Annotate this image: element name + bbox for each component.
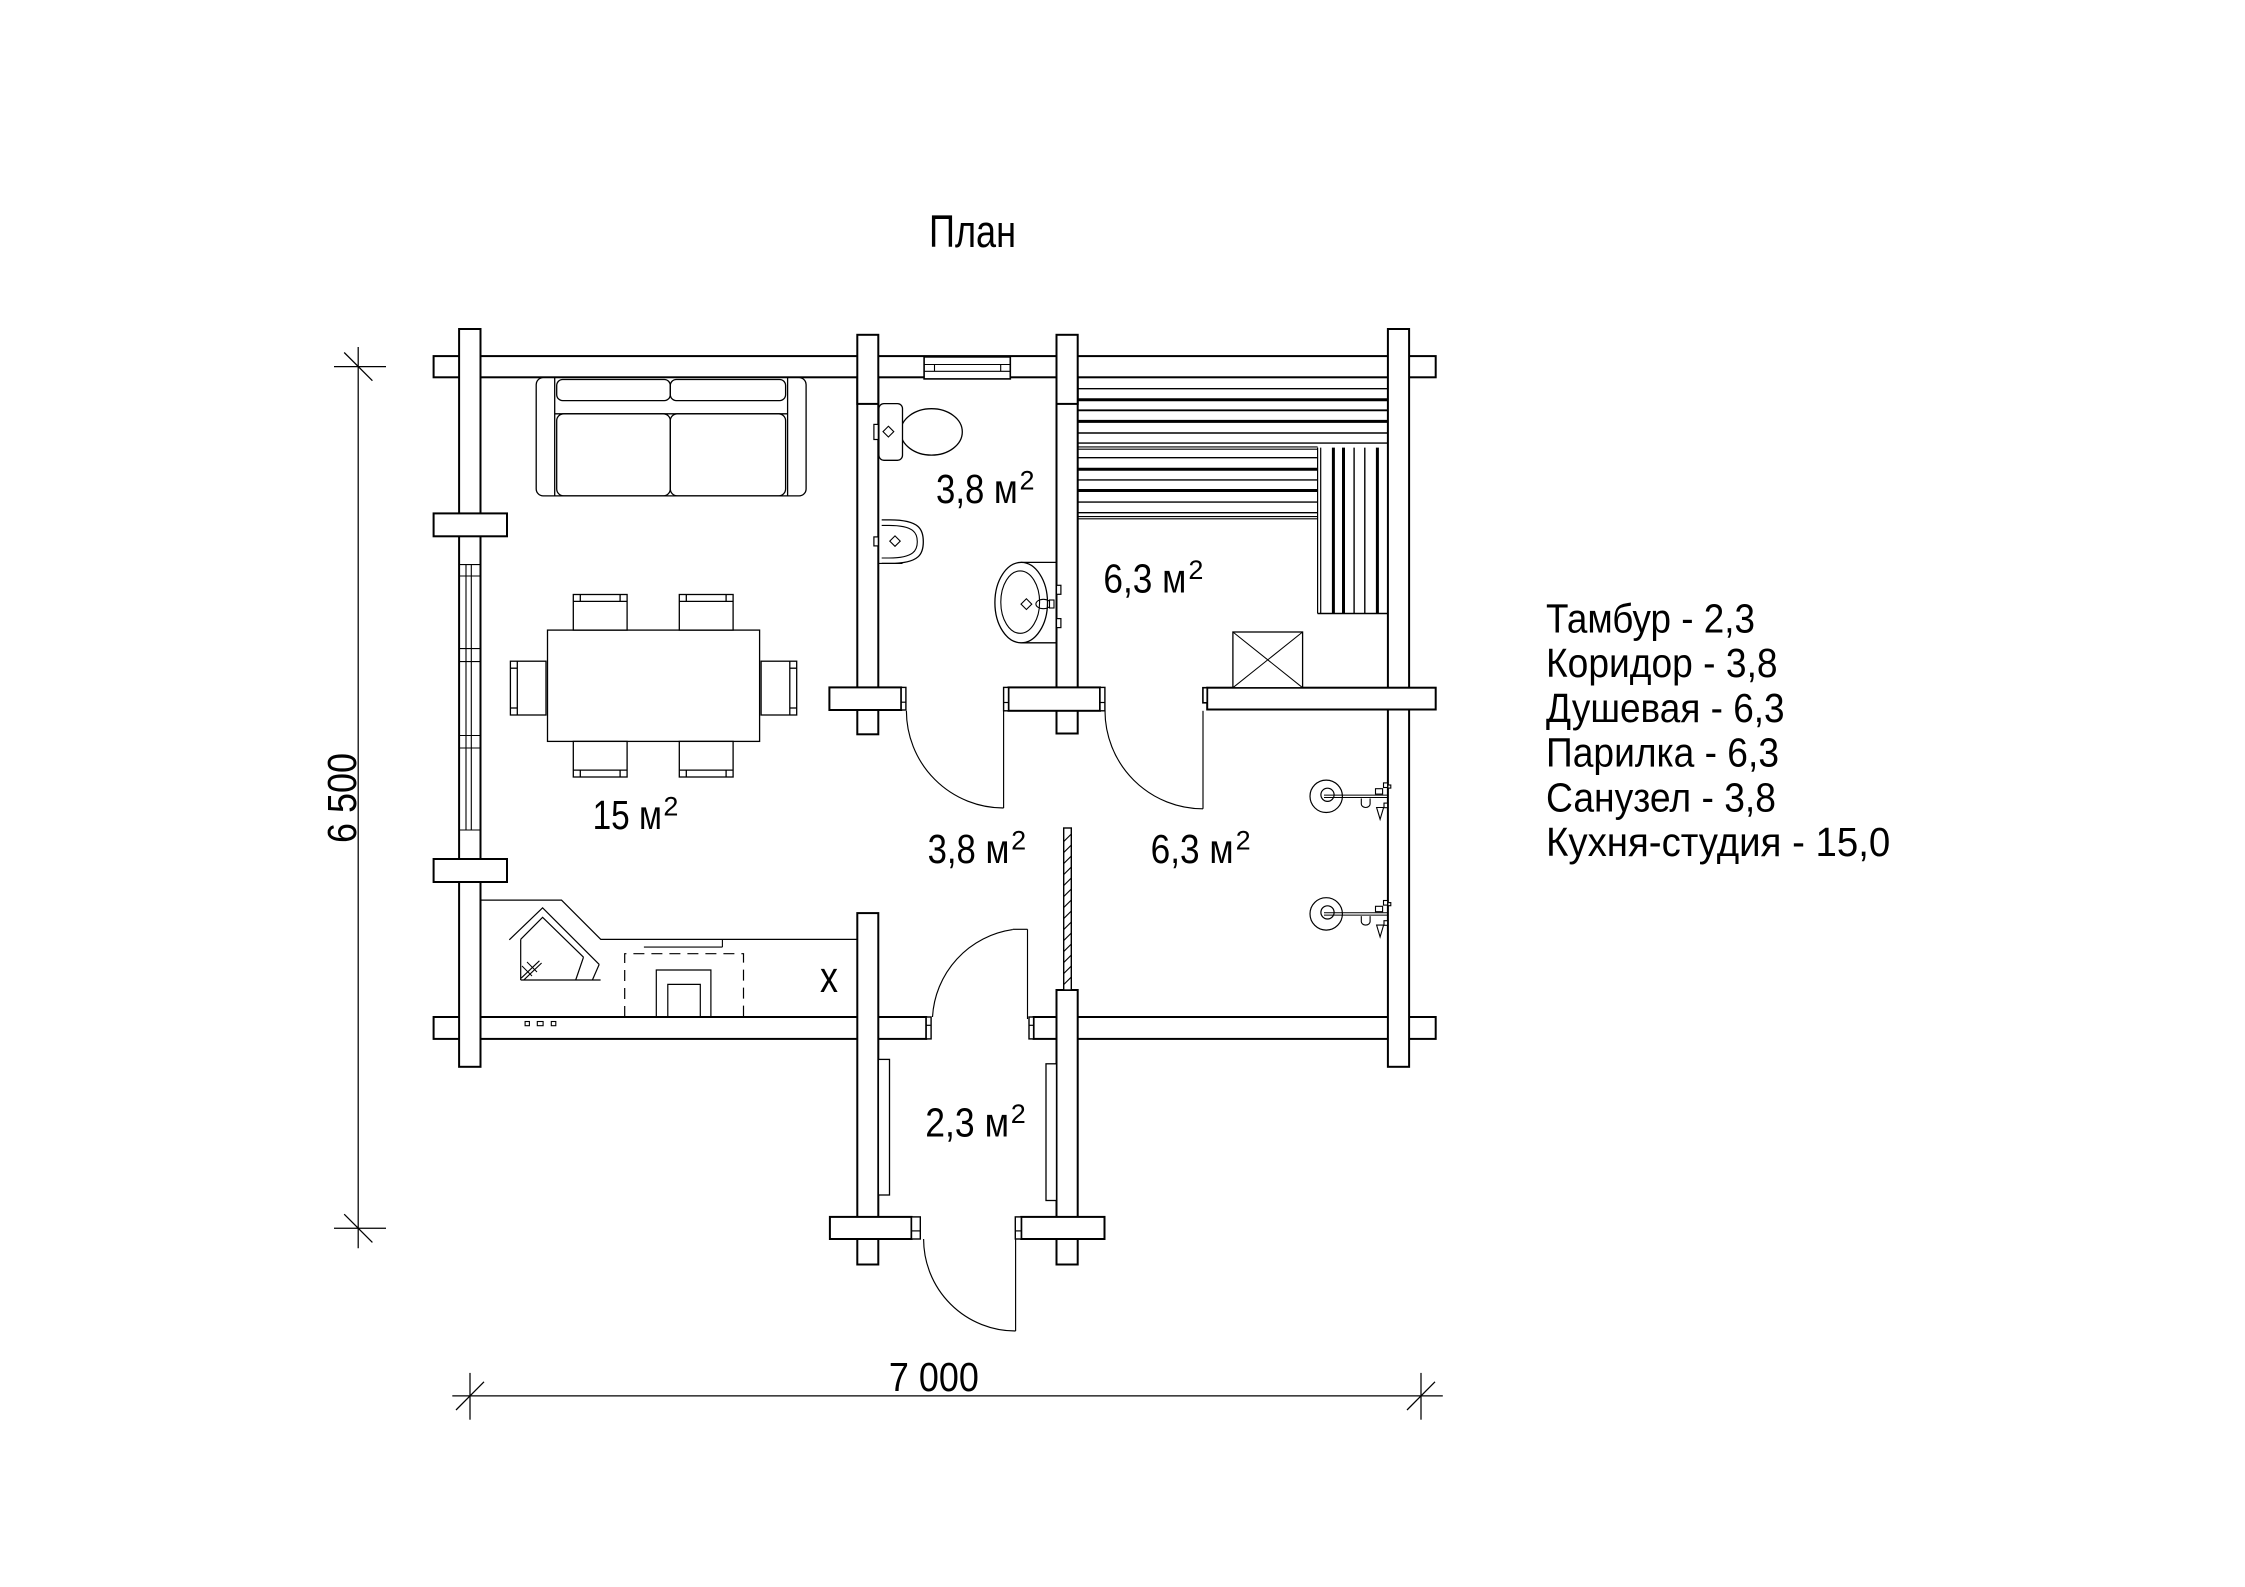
svg-text:3,8 м: 3,8 м [936, 466, 1018, 512]
svg-text:2: 2 [663, 791, 678, 821]
svg-text:6,3 м: 6,3 м [1151, 826, 1234, 872]
svg-text:Тамбур - 2,3: Тамбур - 2,3 [1546, 596, 1755, 642]
svg-text:2: 2 [1011, 1099, 1026, 1129]
svg-text:x: x [820, 953, 838, 1002]
svg-text:2,3 м: 2,3 м [925, 1100, 1009, 1146]
svg-text:6,3 м: 6,3 м [1103, 555, 1186, 601]
svg-text:2: 2 [1188, 555, 1203, 585]
svg-text:Кухня-студия - 15,0: Кухня-студия - 15,0 [1546, 819, 1890, 865]
svg-text:15 м: 15 м [593, 792, 662, 838]
svg-text:3,8 м: 3,8 м [928, 826, 1010, 872]
svg-text:2: 2 [1020, 466, 1035, 496]
svg-text:Парилка - 6,3: Парилка - 6,3 [1546, 730, 1779, 776]
svg-text:2: 2 [1011, 826, 1026, 856]
svg-text:7 000: 7 000 [889, 1354, 979, 1400]
svg-text:2: 2 [1236, 826, 1251, 856]
svg-text:План: План [929, 206, 1016, 257]
svg-text:6 500: 6 500 [319, 753, 365, 843]
svg-text:Коридор - 3,8: Коридор - 3,8 [1546, 640, 1778, 686]
svg-text:Санузел - 3,8: Санузел - 3,8 [1546, 774, 1776, 820]
svg-text:Душевая - 6,3: Душевая - 6,3 [1546, 685, 1785, 731]
